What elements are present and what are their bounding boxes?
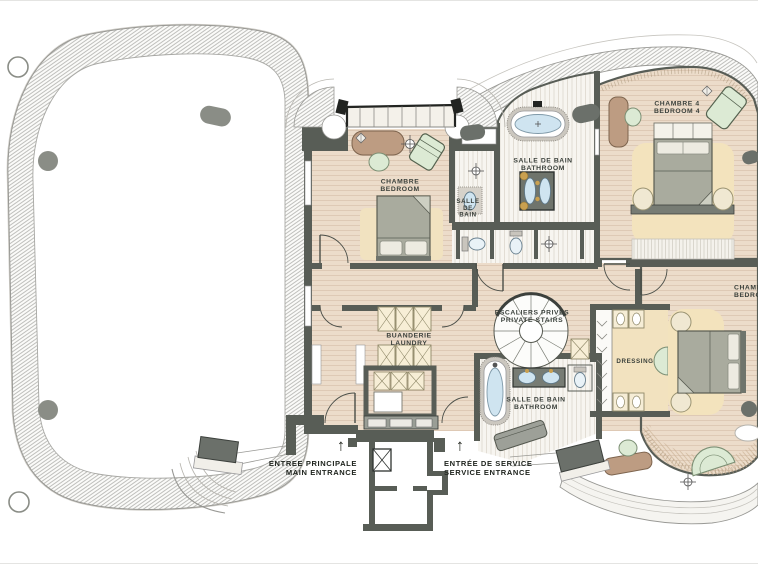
room-name-en: BEDROOM xyxy=(380,185,419,193)
bathtub-icon xyxy=(480,357,510,425)
left-roof-terrace xyxy=(8,25,308,512)
rug-icon xyxy=(632,239,734,259)
room-label-laundry: BUANDERIE LAUNDRY xyxy=(386,331,431,347)
room-label-bathroom-small: SALLE DE BAIN xyxy=(456,198,479,218)
chair-icon xyxy=(369,153,389,171)
double-sink-vanity-icon xyxy=(513,368,565,387)
toilet-icon xyxy=(568,365,592,391)
room-label-bedroom-right: CHAMBRE BEDROOM xyxy=(734,283,758,299)
chimney-icon xyxy=(38,400,58,420)
roof-vent-circle xyxy=(8,57,28,77)
console-icon xyxy=(609,97,628,147)
room-label-bathroom-main: SALLE DE BAIN BATHROOM xyxy=(513,156,572,172)
entrance-label-main: ENTREE PRINCIPALE MAIN ENTRANCE xyxy=(269,459,357,477)
spiral-staircase-icon xyxy=(494,294,568,368)
rug-oval-icon xyxy=(735,425,758,441)
bed-icon xyxy=(678,331,746,393)
pouf-icon xyxy=(671,392,691,412)
chimney-icon xyxy=(38,151,58,171)
room-label-bathroom-lower: SALLE DE BAIN BATHROOM xyxy=(506,395,565,411)
toilet-icon xyxy=(462,237,485,251)
room-label-bedroom-4: CHAMBRE 4 BEDROOM 4 xyxy=(654,99,700,115)
pouf-icon xyxy=(671,312,691,332)
floor-plan-drawing xyxy=(0,1,758,564)
double-sink-vanity-icon xyxy=(520,172,554,210)
room-label-private-stairs: ESCALIERS PRIVÉS PRIVATE STAIRS xyxy=(495,308,570,324)
room-label-bedroom-1: CHAMBRE BEDROOM xyxy=(380,177,419,193)
arrow-up-icon-service-entrance: ↑ xyxy=(456,437,464,455)
arrow-up-icon-main-entrance: ↑ xyxy=(337,437,345,455)
room-label-dressing: DRESSING xyxy=(616,358,653,365)
floor-plan-page: CHAMBRE BEDROOM SALLE DE BAIN SALLE DE B… xyxy=(0,0,758,564)
stair-flight-icon xyxy=(373,449,391,471)
roof-vent-circle xyxy=(9,492,29,512)
pouf-icon xyxy=(633,188,653,210)
ceiling-light-icon xyxy=(680,474,696,490)
closet-x-box xyxy=(571,339,589,359)
room-name-fr: CHAMBRE xyxy=(380,177,419,185)
pouf-icon xyxy=(713,188,733,210)
bed-icon xyxy=(376,196,431,261)
stool-icon xyxy=(741,401,757,417)
toilet-icon xyxy=(510,231,522,254)
bed-icon xyxy=(654,123,712,209)
chair-icon xyxy=(619,440,637,456)
hall-cabinet-row xyxy=(364,416,438,429)
entrance-label-service: ENTRÉE DE SERVICE SERVICE ENTRANCE xyxy=(444,459,533,477)
stairwell-structure xyxy=(348,430,448,531)
roof-band-bottom-right xyxy=(560,469,758,524)
chair-icon xyxy=(625,108,641,126)
